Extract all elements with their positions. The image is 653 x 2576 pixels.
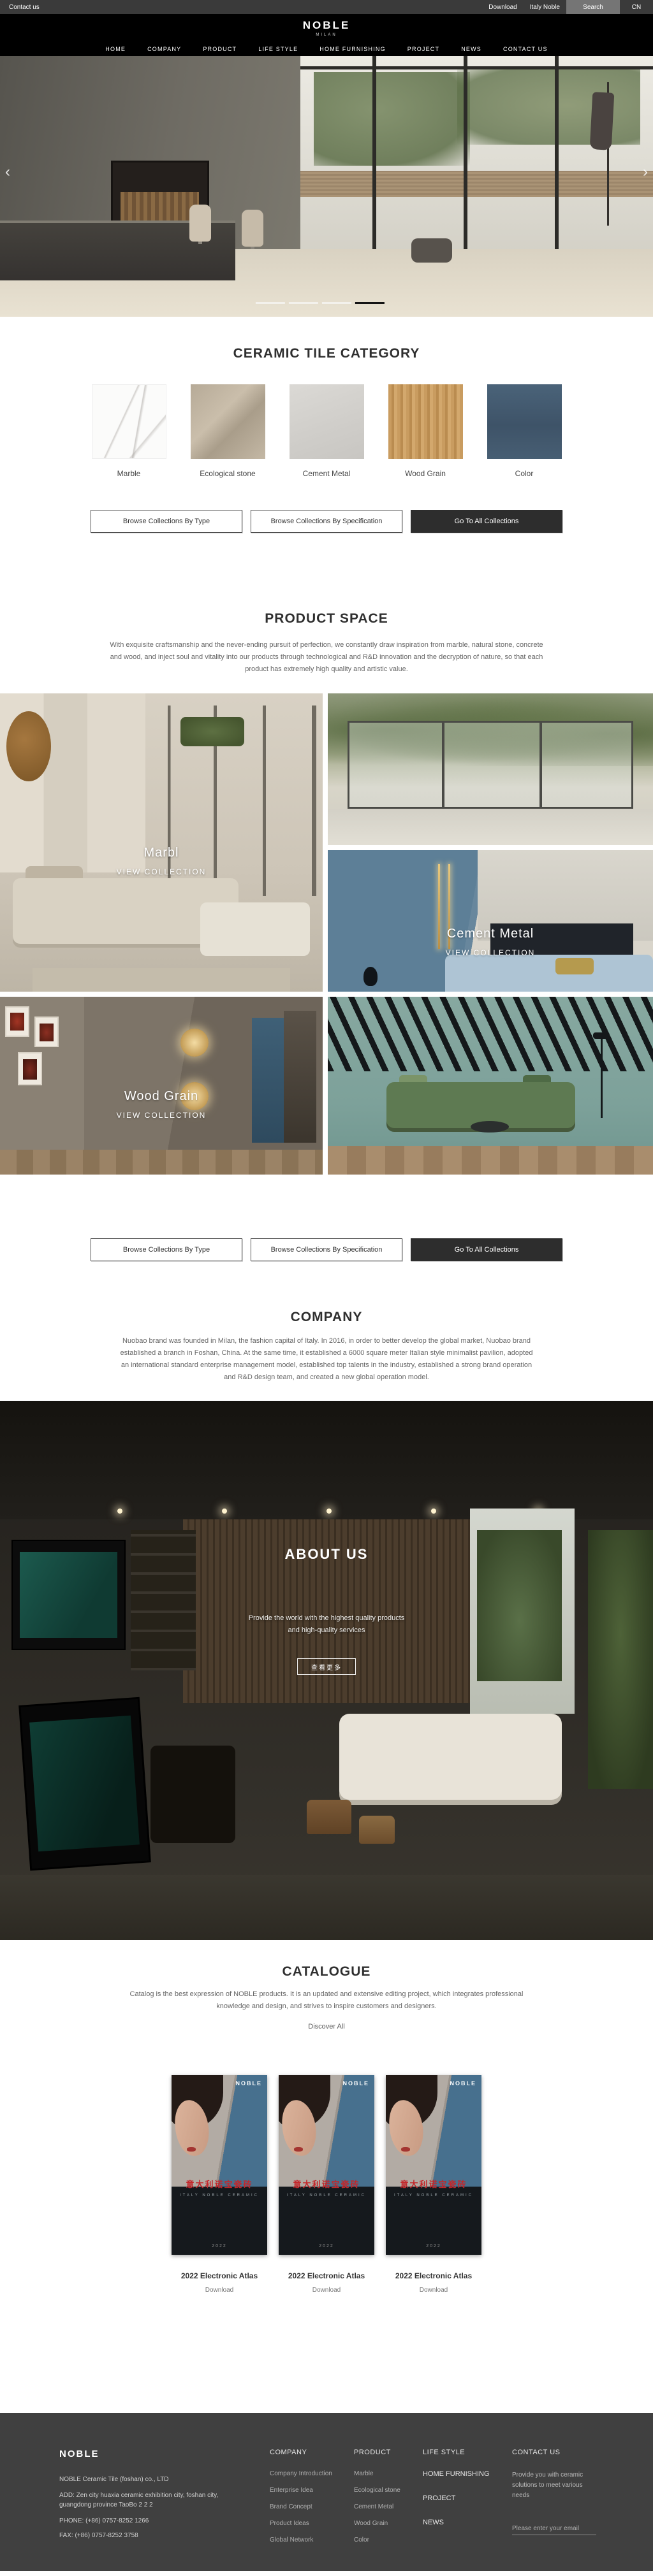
hero-image-bar-stool (242, 210, 263, 247)
category-section-title: CERAMIC TILE CATEGORY (0, 346, 653, 361)
carousel-dot-1[interactable] (256, 302, 285, 304)
section-company: COMPANY Nuobao brand was founded in Mila… (0, 1310, 653, 1384)
hero-image-coat (589, 92, 614, 150)
section-catalogue: CATALOGUE Catalog is the best expression… (0, 1964, 653, 2294)
footer-column-life-style: LIFE STYLE HOME FURNISHING PROJECT NEWS (423, 2449, 512, 2571)
space-name-label: Wood Grain (0, 1089, 323, 1104)
space-overlay-marble: Marbl VIEW COLLECTION (0, 846, 323, 876)
section-about-us: ABOUT US Provide the world with the high… (0, 1401, 653, 1940)
catalogue-section-title: CATALOGUE (0, 1964, 653, 1979)
footer-column-title: PRODUCT (354, 2449, 423, 2456)
scene-shape (555, 958, 594, 974)
cover-subtitle: ITALY NOBLE CERAMIC (279, 2194, 374, 2197)
footer-link-ecological-stone[interactable]: Ecological stone (354, 2487, 423, 2494)
category-label: Wood Grain (388, 469, 463, 478)
download-link[interactable]: Download (488, 4, 517, 11)
top-utility-bar: Contact us Download Italy Noble Search C… (0, 0, 653, 14)
space-overlay-cement-metal: Cement Metal VIEW COLLECTION (328, 927, 653, 957)
cover-art (187, 2147, 196, 2152)
space-image-color[interactable] (328, 997, 653, 1175)
hero-image-firewood (121, 192, 199, 223)
view-more-button[interactable]: 查看更多 (297, 1658, 356, 1675)
product-space-buttons-row: Browse Collections By Type Browse Collec… (0, 1238, 653, 1261)
footer-column-title: CONTACT US (512, 2449, 608, 2456)
hero-image-window-mullion (372, 56, 376, 259)
footer-link-news[interactable]: NEWS (423, 2519, 512, 2526)
main-nav: HOME COMPANY PRODUCT LIFE STYLE HOME FUR… (0, 42, 653, 56)
footer-link-enterprise-idea[interactable]: Enterprise Idea (270, 2487, 354, 2494)
hero-image-greenery (314, 72, 471, 166)
browse-by-type-button[interactable]: Browse Collections By Type (91, 510, 242, 533)
footer-link-home-furnishing[interactable]: HOME FURNISHING (423, 2470, 512, 2478)
scene-shape (0, 1401, 653, 1519)
footer-link-wood-grain[interactable]: Wood Grain (354, 2520, 423, 2527)
ecological-stone-tile-swatch[interactable] (191, 384, 265, 459)
cover-caption: 2022 (386, 2244, 481, 2248)
carousel-dot-3[interactable] (322, 302, 351, 304)
cover-brand-logo: NOBLE (236, 2080, 263, 2087)
carousel-dot-2[interactable] (289, 302, 318, 304)
product-space-row-2: Wood Grain VIEW COLLECTION (0, 997, 653, 1175)
hero-image-bar-stool (189, 205, 211, 242)
catalogue-cover[interactable]: NOBLE 意大利诺宝瓷砖 ITALY NOBLE CERAMIC 2022 (279, 2075, 374, 2255)
catalogue-download-link[interactable]: Download (279, 2287, 374, 2294)
category-item-wood-grain[interactable]: Wood Grain (388, 384, 463, 478)
hero-image-deck (300, 171, 653, 197)
cover-title-cn: 意大利诺宝瓷砖 (386, 2178, 481, 2190)
nav-item-project[interactable]: PROJECT (397, 46, 450, 52)
scene-shape (180, 717, 244, 746)
cover-art (401, 2147, 410, 2152)
footer-link-marble[interactable]: Marble (354, 2470, 423, 2477)
go-to-all-collections-button[interactable]: Go To All Collections (411, 510, 562, 533)
space-name-label: Cement Metal (328, 927, 653, 941)
italy-noble-link[interactable]: Italy Noble (530, 4, 560, 11)
catalogue-item-1: NOBLE 意大利诺宝瓷砖 ITALY NOBLE CERAMIC 2022 2… (172, 2075, 267, 2294)
catalogue-item-label: 2022 Electronic Atlas (386, 2271, 481, 2280)
footer-company-line: NOBLE Ceramic Tile (foshan) co., LTD (59, 2476, 251, 2483)
category-label: Marble (92, 469, 166, 478)
browse-by-type-button[interactable]: Browse Collections By Type (91, 1238, 242, 1261)
search-button[interactable]: Search (566, 0, 620, 14)
category-item-cement-metal[interactable]: Cement Metal (290, 384, 364, 478)
footer-link-color[interactable]: Color (354, 2536, 423, 2543)
space-image-glass-house[interactable] (328, 693, 653, 845)
space-name-label: Marbl (0, 846, 323, 860)
footer-link-global-network[interactable]: Global Network (270, 2536, 354, 2543)
space-image-marble[interactable]: Marbl VIEW COLLECTION (0, 693, 323, 992)
scene-shape (363, 967, 378, 986)
nav-item-news[interactable]: NEWS (450, 46, 492, 52)
brand-logo[interactable]: NOBLE (303, 19, 351, 32)
footer-link-project[interactable]: PROJECT (423, 2494, 512, 2502)
nav-item-life-style[interactable]: LIFE STYLE (247, 46, 309, 52)
browse-by-specification-button[interactable]: Browse Collections By Specification (251, 1238, 402, 1261)
section-ceramic-tile-category: CERAMIC TILE CATEGORY Marble Ecological … (0, 317, 653, 536)
cover-caption: 2022 (172, 2244, 267, 2248)
footer-column-title: LIFE STYLE (423, 2449, 512, 2456)
footer-column-contact-us: CONTACT US Provide you with ceramic solu… (512, 2449, 608, 2571)
nav-item-contact-us[interactable]: CONTACT US (492, 46, 559, 52)
scene-shape (23, 1059, 37, 1080)
product-space-description: With exquisite craftsmanship and the nev… (110, 639, 543, 676)
footer-link-brand-concept[interactable]: Brand Concept (270, 2503, 354, 2510)
about-text-line-2: and high-quality services (0, 1624, 653, 1637)
view-collection-link[interactable]: VIEW COLLECTION (0, 1111, 323, 1120)
cover-brand-logo: NOBLE (343, 2080, 370, 2087)
category-buttons-row: Browse Collections By Type Browse Collec… (0, 510, 653, 533)
scene-shape (339, 1714, 561, 1800)
catalogue-download-link[interactable]: Download (172, 2287, 267, 2294)
catalogue-item-label: 2022 Electronic Atlas (279, 2271, 374, 2280)
scene-shape (539, 721, 542, 809)
company-section-title: COMPANY (0, 1310, 653, 1325)
scene-shape (6, 711, 51, 781)
carousel-indicator (256, 302, 385, 304)
scene-shape (40, 1024, 54, 1041)
color-tile-swatch[interactable] (487, 384, 562, 459)
scene-shape (471, 1121, 509, 1132)
about-us-text: Provide the world with the highest quali… (0, 1612, 653, 1637)
category-item-ecological-stone[interactable]: Ecological stone (191, 384, 265, 478)
nav-item-company[interactable]: COMPANY (136, 46, 192, 52)
hero-image-window-frame (300, 66, 653, 69)
cover-caption: 2022 (279, 2244, 374, 2248)
language-switch-cn[interactable]: CN (620, 4, 653, 11)
footer-contact-text: Provide you with ceramic solutions to me… (512, 2470, 594, 2501)
about-us-title: ABOUT US (0, 1546, 653, 1563)
scene-shape (601, 1036, 603, 1117)
category-tiles-row: Marble Ecological stone Cement Metal Woo… (0, 384, 653, 478)
cement-metal-tile-swatch[interactable] (290, 384, 364, 459)
nav-item-home[interactable]: HOME (94, 46, 136, 52)
scene-shape (442, 721, 444, 809)
product-space-title: PRODUCT SPACE (0, 611, 653, 626)
cover-art (294, 2147, 303, 2152)
browse-by-specification-button[interactable]: Browse Collections By Specification (251, 510, 402, 533)
footer-link-company-introduction[interactable]: Company Introduction (270, 2470, 354, 2477)
hero-carousel: ‹ › (0, 56, 653, 317)
scene-shape (307, 1800, 351, 1834)
category-label: Color (487, 469, 562, 478)
catalogue-item-label: 2022 Electronic Atlas (172, 2271, 267, 2280)
footer-column-product: PRODUCT Marble Ecological stone Cement M… (354, 2449, 423, 2571)
scene-shape (445, 955, 653, 992)
scene-shape (0, 1875, 653, 1940)
cover-subtitle: ITALY NOBLE CERAMIC (172, 2194, 267, 2197)
product-space-row-1: Marbl VIEW COLLECTION (0, 693, 653, 992)
space-image-wood-grain[interactable]: Wood Grain VIEW COLLECTION (0, 997, 323, 1175)
about-text-line-1: Provide the world with the highest quali… (0, 1612, 653, 1624)
catalogue-description: Catalog is the best expression of NOBLE … (129, 1988, 524, 2013)
category-item-marble[interactable]: Marble (92, 384, 166, 478)
product-space-right-column: Cement Metal VIEW COLLECTION (328, 693, 653, 992)
spotlight (431, 1509, 436, 1514)
footer-link-cement-metal[interactable]: Cement Metal (354, 2503, 423, 2510)
catalogue-cover[interactable]: NOBLE 意大利诺宝瓷砖 ITALY NOBLE CERAMIC 2022 (172, 2075, 267, 2255)
footer-link-product-ideas[interactable]: Product Ideas (270, 2520, 354, 2527)
footer-address: ADD: Zen city huaxia ceramic exhibition … (59, 2491, 224, 2510)
discover-all-link[interactable]: Discover All (0, 2023, 653, 2030)
footer-brand-logo: NOBLE (59, 2449, 251, 2459)
hero-image-pouf (411, 238, 452, 263)
category-label: Cement Metal (290, 469, 364, 478)
space-overlay-wood-grain: Wood Grain VIEW COLLECTION (0, 1089, 323, 1120)
nav-item-home-furnishing[interactable]: HOME FURNISHING (309, 46, 397, 52)
footer-phone: PHONE: (+86) 0757-8252 1266 (59, 2517, 251, 2524)
category-label: Ecological stone (191, 469, 265, 478)
footer-column-company: COMPANY Company Introduction Enterprise … (270, 2449, 354, 2571)
scene-shape (200, 902, 310, 956)
marble-tile-swatch[interactable] (92, 384, 166, 459)
view-collection-link[interactable]: VIEW COLLECTION (328, 948, 653, 957)
carousel-prev-icon[interactable]: ‹ (5, 164, 10, 180)
cover-title-cn: 意大利诺宝瓷砖 (172, 2178, 267, 2190)
scene-shape (328, 1146, 653, 1175)
scene-shape (180, 1029, 209, 1057)
scene-shape (29, 1716, 139, 1852)
footer: NOBLE NOBLE Ceramic Tile (foshan) co., L… (0, 2413, 653, 2571)
category-item-color[interactable]: Color (487, 384, 562, 478)
scene-shape (10, 1013, 24, 1031)
section-product-space: PRODUCT SPACE With exquisite craftsmansh… (0, 611, 653, 1261)
view-collection-link[interactable]: VIEW COLLECTION (0, 867, 323, 876)
product-space-grid: Marbl VIEW COLLECTION (0, 693, 653, 1175)
carousel-dot-4-active[interactable] (355, 302, 385, 304)
cover-brand-logo: NOBLE (450, 2080, 477, 2087)
about-overlay: ABOUT US Provide the world with the high… (0, 1546, 653, 1675)
cover-subtitle: ITALY NOBLE CERAMIC (386, 2194, 481, 2197)
cover-title-cn: 意大利诺宝瓷砖 (279, 2178, 374, 2190)
catalogue-download-link[interactable]: Download (386, 2287, 481, 2294)
go-to-all-collections-button[interactable]: Go To All Collections (411, 1238, 562, 1261)
email-subscribe-input[interactable] (512, 2522, 596, 2535)
footer-fax: FAX: (+86) 0757-8252 3758 (59, 2532, 251, 2539)
catalogue-item-3: NOBLE 意大利诺宝瓷砖 ITALY NOBLE CERAMIC 2022 2… (386, 2075, 481, 2294)
scene-shape (0, 1150, 323, 1175)
nav-item-product[interactable]: PRODUCT (192, 46, 247, 52)
hero-image-window-mullion (464, 56, 467, 259)
site-header: NOBLE MILAN (0, 14, 653, 42)
scene-shape (284, 1011, 316, 1142)
scene-shape (33, 968, 291, 992)
company-description: Nuobao brand was founded in Milan, the f… (116, 1335, 537, 1384)
scene-shape (328, 809, 653, 845)
hero-image-window-mullion (555, 56, 559, 259)
footer-column-title: COMPANY (270, 2449, 354, 2456)
contact-us-link[interactable]: Contact us (9, 4, 40, 11)
scene-shape (150, 1746, 235, 1842)
scene-shape (593, 1032, 610, 1039)
wood-grain-tile-swatch[interactable] (388, 384, 463, 459)
catalogue-cover[interactable]: NOBLE 意大利诺宝瓷砖 ITALY NOBLE CERAMIC 2022 (386, 2075, 481, 2255)
footer-brand-block: NOBLE NOBLE Ceramic Tile (foshan) co., L… (59, 2449, 251, 2571)
space-image-cement-metal[interactable]: Cement Metal VIEW COLLECTION (328, 850, 653, 992)
scene-shape (359, 1816, 395, 1844)
brand-logo-subtitle: MILAN (316, 33, 337, 37)
scene-shape (348, 721, 634, 809)
catalogue-covers-row: NOBLE 意大利诺宝瓷砖 ITALY NOBLE CERAMIC 2022 2… (0, 2075, 653, 2294)
catalogue-item-2: NOBLE 意大利诺宝瓷砖 ITALY NOBLE CERAMIC 2022 2… (279, 2075, 374, 2294)
carousel-next-icon[interactable]: › (643, 164, 648, 180)
